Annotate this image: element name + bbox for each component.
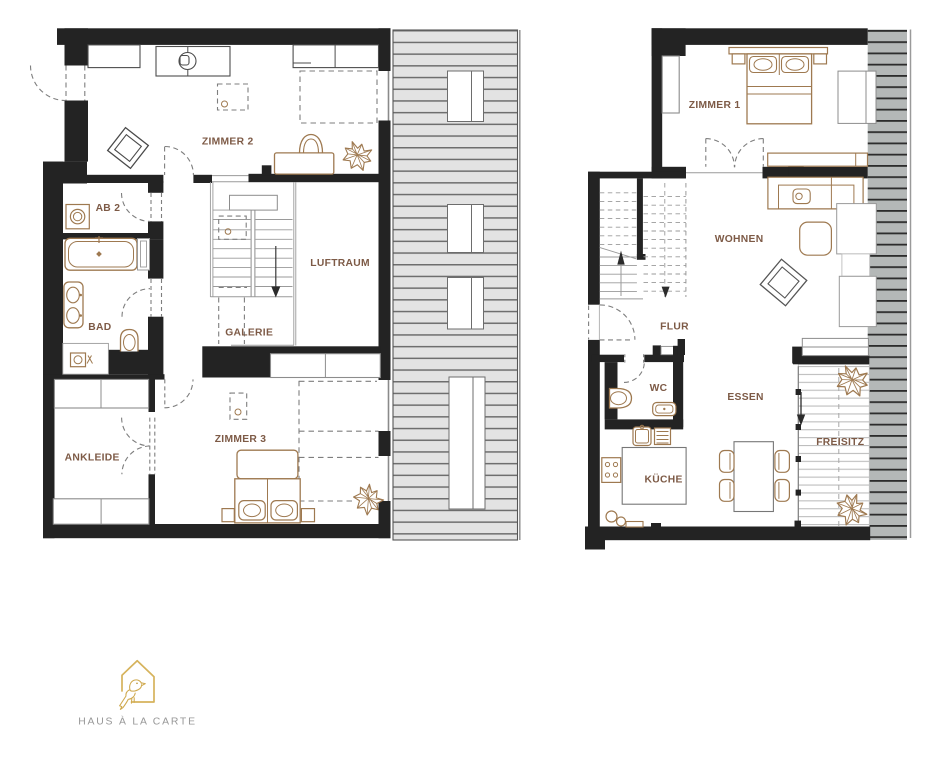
- svg-text:ANKLEIDE: ANKLEIDE: [65, 452, 120, 463]
- svg-text:BAD: BAD: [88, 322, 111, 333]
- svg-text:ZIMMER 2: ZIMMER 2: [202, 136, 254, 147]
- svg-text:GALERIE: GALERIE: [225, 328, 273, 339]
- svg-text:HAUS À LA CARTE: HAUS À LA CARTE: [78, 715, 197, 728]
- svg-text:WC: WC: [650, 383, 668, 394]
- svg-text:ESSEN: ESSEN: [727, 392, 763, 403]
- svg-text:KÜCHE: KÜCHE: [645, 473, 683, 486]
- svg-text:FREISITZ: FREISITZ: [816, 437, 864, 448]
- svg-text:ZIMMER 1: ZIMMER 1: [689, 100, 741, 111]
- svg-text:WOHNEN: WOHNEN: [715, 234, 764, 245]
- svg-text:LUFTRAUM: LUFTRAUM: [310, 258, 370, 269]
- svg-text:AB 2: AB 2: [96, 203, 121, 214]
- svg-text:FLUR: FLUR: [660, 321, 689, 332]
- svg-text:ZIMMER 3: ZIMMER 3: [215, 434, 267, 445]
